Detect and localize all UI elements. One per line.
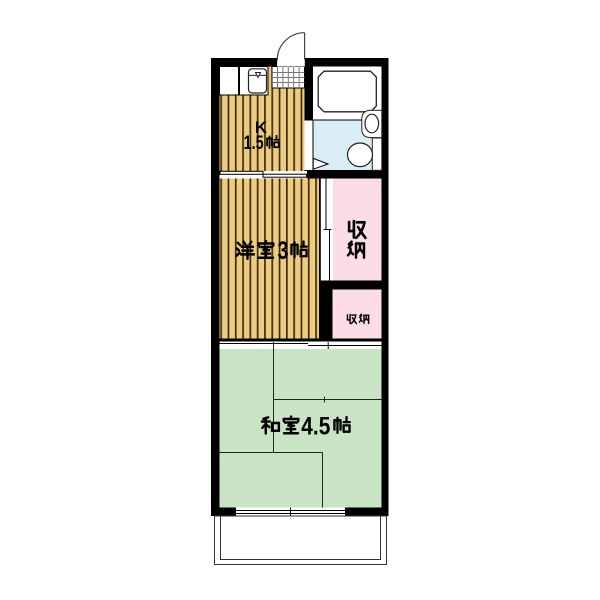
svg-text:1.5: 1.5 xyxy=(244,133,264,154)
svg-text:4.5: 4.5 xyxy=(301,413,330,441)
svg-text:3: 3 xyxy=(278,237,289,265)
